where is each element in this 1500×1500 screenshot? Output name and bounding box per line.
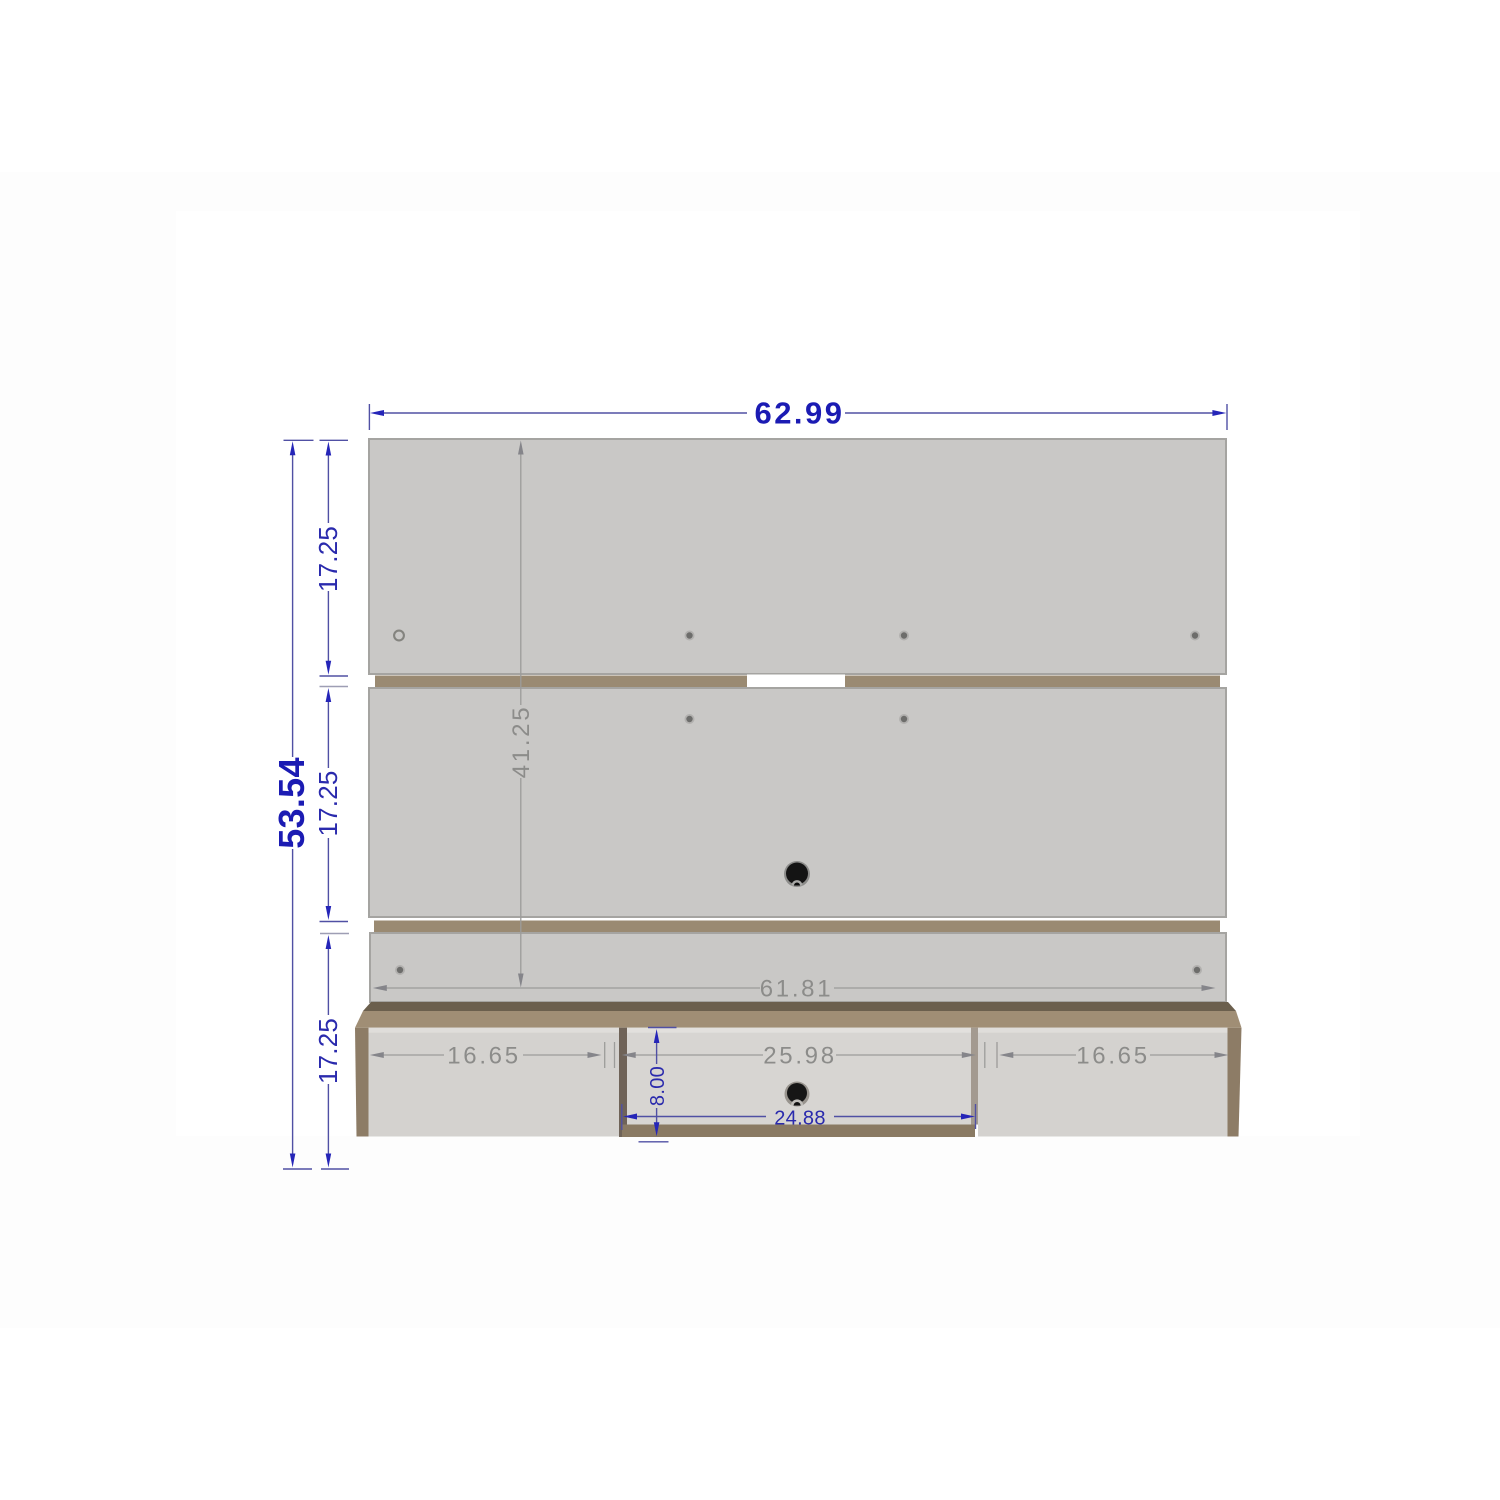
svg-text:17.25: 17.25 — [313, 770, 343, 836]
svg-text:41.25: 41.25 — [508, 705, 535, 779]
svg-text:53.54: 53.54 — [271, 757, 312, 849]
svg-text:16.65: 16.65 — [1076, 1043, 1150, 1070]
svg-text:25.98: 25.98 — [763, 1043, 837, 1070]
svg-text:8.00: 8.00 — [647, 1066, 669, 1106]
svg-text:17.25: 17.25 — [313, 1018, 343, 1084]
svg-text:61.81: 61.81 — [760, 976, 834, 1003]
svg-text:62.99: 62.99 — [754, 396, 844, 431]
svg-text:16.65: 16.65 — [447, 1043, 521, 1070]
svg-text:24.88: 24.88 — [774, 1108, 826, 1130]
svg-text:17.25: 17.25 — [313, 526, 343, 592]
